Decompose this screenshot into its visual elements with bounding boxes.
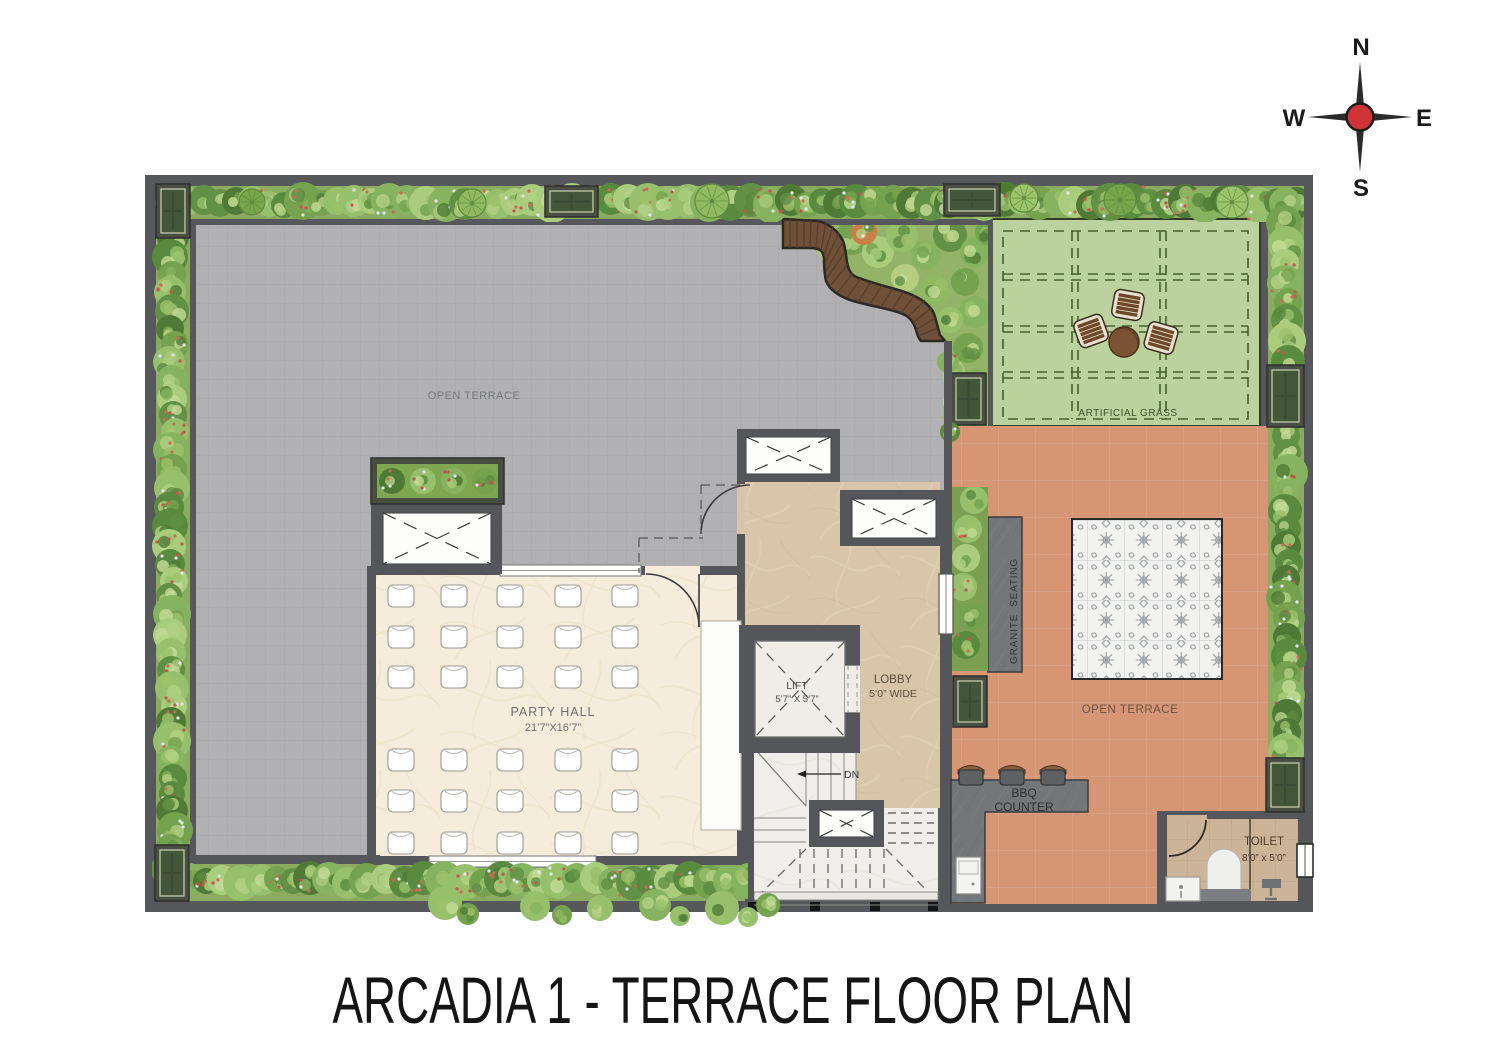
svg-text:21’7”X16’7”: 21’7”X16’7” <box>525 722 582 734</box>
svg-text:LOBBY: LOBBY <box>874 674 913 686</box>
svg-text:E: E <box>1416 105 1432 132</box>
svg-text:5’7” X 5’7”: 5’7” X 5’7” <box>775 694 818 705</box>
svg-text:LIFT: LIFT <box>786 680 808 692</box>
svg-text:OPEN TERRACE: OPEN TERRACE <box>428 390 521 402</box>
svg-text:N: N <box>1352 34 1369 61</box>
svg-text:GRANITE SEATING: GRANITE SEATING <box>1009 558 1020 664</box>
svg-text:OPEN TERRACE: OPEN TERRACE <box>1082 704 1179 716</box>
svg-text:TOILET: TOILET <box>1244 836 1284 848</box>
svg-text:BBQ: BBQ <box>1011 786 1036 800</box>
svg-text:PARTY HALL: PARTY HALL <box>510 705 595 719</box>
svg-text:ARTIFICIAL GRASS: ARTIFICIAL GRASS <box>1078 408 1177 419</box>
svg-text:DN: DN <box>844 769 859 781</box>
svg-text:S: S <box>1353 175 1369 202</box>
svg-text:W: W <box>1283 105 1306 132</box>
svg-text:COUNTER: COUNTER <box>994 800 1054 814</box>
svg-text:ARCADIA 1 - TERRACE FLOOR PLAN: ARCADIA 1 - TERRACE FLOOR PLAN <box>333 963 1134 1037</box>
svg-text:8’0” x 5’0”: 8’0” x 5’0” <box>1242 853 1286 864</box>
svg-text:5’0” WIDE: 5’0” WIDE <box>869 688 917 700</box>
